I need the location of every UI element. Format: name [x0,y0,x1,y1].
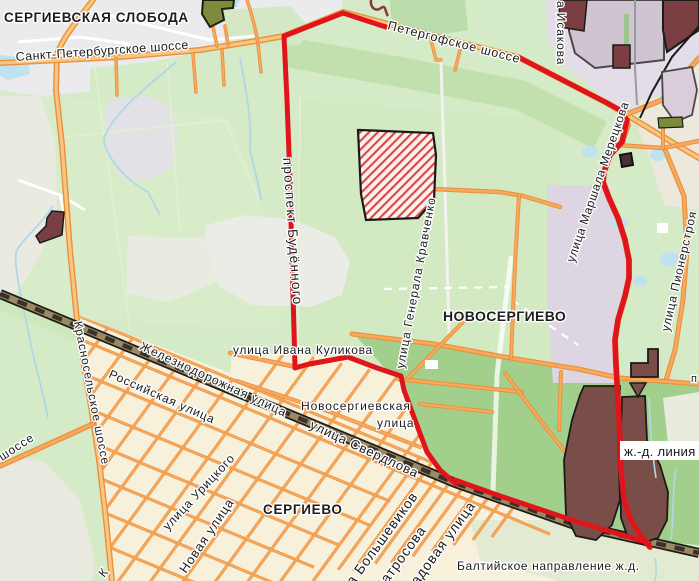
svg-text:СЕРГИЕВСКАЯ СЛОБОДА: СЕРГИЕВСКАЯ СЛОБОДА [4,10,189,25]
svg-text:СЕРГИЕВО: СЕРГИЕВО [263,502,343,517]
svg-text:Балтийское направление ж.д.: Балтийское направление ж.д. [457,559,640,573]
svg-text:ж.-д. линия: ж.-д. линия [624,444,696,459]
svg-text:п: п [691,373,697,385]
svg-text:улица: улица [377,416,415,430]
svg-text:НОВОСЕРГИЕВО: НОВОСЕРГИЕВО [443,308,566,324]
svg-text:Новосергиевская: Новосергиевская [301,399,411,413]
svg-text:улица Ивана Куликова: улица Ивана Куликова [233,343,373,357]
svg-text:а Исакова: а Исакова [554,1,568,65]
